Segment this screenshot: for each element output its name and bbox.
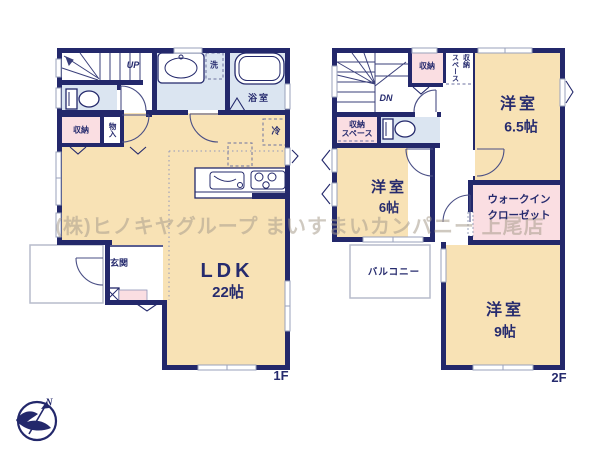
floor2-label: 2F	[551, 371, 566, 385]
storage-space-line: スペース	[341, 130, 372, 139]
balcony-label: バルコニー	[368, 268, 420, 278]
room6-name-label: 洋室	[371, 180, 407, 197]
room65-size-label: 6.5帖	[504, 119, 537, 134]
storage-2f-label: 収納	[419, 63, 435, 72]
closet-1f-label: 物入	[108, 123, 116, 138]
bathroom-label: 浴室	[248, 94, 270, 104]
ldk-name-label: LDK	[200, 260, 253, 282]
hall-1f	[121, 85, 152, 110]
stairs-up-label: UP	[127, 61, 140, 71]
bathtub-icon	[235, 53, 284, 84]
compass-north-label: N	[45, 398, 52, 409]
sink-icon	[158, 53, 204, 83]
wic-label: ウォークイン クローゼット	[488, 192, 551, 224]
room6-size-label: 6帖	[379, 201, 399, 215]
fridge-label: 冷	[271, 127, 280, 137]
entrance-label: 玄関	[110, 259, 128, 269]
toilet-icon-2f	[383, 119, 415, 139]
room9-size-label: 9帖	[494, 324, 516, 339]
laundry-label: 洗	[210, 62, 218, 71]
room9-name-label: 洋室	[486, 302, 524, 320]
storage-1f-label: 収納	[73, 127, 89, 136]
floor1-label: 1F	[273, 369, 288, 383]
storage-space-left-label: 収納 スペース	[341, 121, 372, 139]
room-65	[475, 53, 560, 180]
storage-space-top-label: スペース 収納	[450, 54, 471, 82]
wic-line: ウォークイン	[488, 192, 551, 208]
room65-name-label: 洋室	[500, 96, 538, 114]
storage-space-col: 収納	[461, 54, 471, 82]
porch	[30, 245, 103, 303]
storage-space-col: スペース	[450, 54, 460, 82]
stairs-dn-label: DN	[380, 94, 393, 104]
wic-line: クローゼット	[488, 208, 551, 224]
ldk-size-label: 22帖	[212, 285, 244, 302]
entrance-step	[119, 290, 147, 301]
floorplan-image: (株)ヒノキヤグループ まいすまいカンパニー 上尾店 UP 洗 浴室 収納 物入…	[0, 0, 600, 450]
